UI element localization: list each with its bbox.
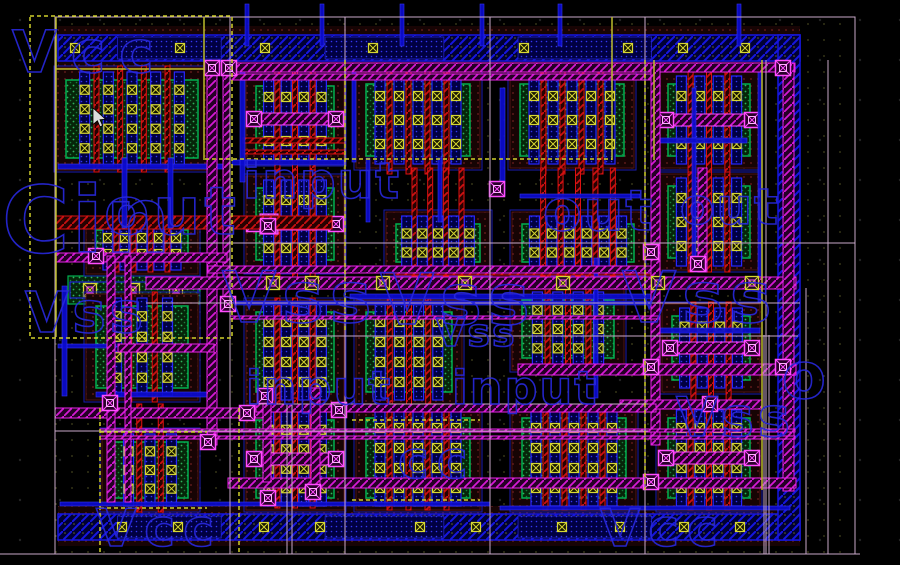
contact: [606, 116, 615, 125]
via[interactable]: [222, 61, 237, 76]
contact: [395, 140, 404, 149]
contact: [264, 244, 273, 253]
ic-layout-canvas[interactable]: VccCinoutinputoutoutVssVssVssVssVssinput…: [0, 0, 900, 565]
contact: [299, 93, 308, 102]
contact: [369, 44, 378, 53]
contact: [317, 244, 326, 253]
metal1-route[interactable]: [245, 4, 249, 46]
contact: [176, 44, 185, 53]
contact: [452, 116, 461, 125]
metal1-route[interactable]: [320, 4, 324, 46]
net-label: input: [243, 152, 401, 210]
contact: [146, 466, 155, 475]
contact: [434, 229, 443, 238]
contact: [533, 344, 542, 353]
metal2-strap[interactable]: [660, 452, 758, 464]
contact: [553, 305, 562, 314]
net-label: Vss: [25, 281, 147, 346]
contact: [167, 466, 176, 475]
net-label: input: [452, 361, 598, 415]
contact: [568, 116, 577, 125]
contact: [163, 353, 172, 362]
net-label: Vss: [436, 311, 517, 355]
via[interactable]: [745, 341, 760, 356]
contact: [414, 140, 423, 149]
contact: [472, 523, 481, 532]
contact: [695, 92, 704, 101]
contact: [449, 229, 458, 238]
contact: [624, 44, 633, 53]
contact: [695, 464, 704, 473]
contact: [299, 464, 308, 473]
metal1-route[interactable]: [737, 4, 741, 46]
contact: [151, 144, 160, 153]
contact: [128, 124, 137, 133]
contact: [547, 248, 556, 257]
poly-gate[interactable]: [562, 404, 567, 510]
via[interactable]: [329, 112, 344, 127]
contact: [608, 444, 617, 453]
contact: [175, 85, 184, 94]
contact: [532, 464, 541, 473]
contact: [589, 444, 598, 453]
via[interactable]: [306, 485, 321, 500]
poly-gate[interactable]: [581, 404, 586, 510]
contact: [261, 44, 270, 53]
contact: [452, 92, 461, 101]
contact: [151, 105, 160, 114]
metal1-route[interactable]: [655, 138, 747, 143]
contact: [163, 373, 172, 382]
via[interactable]: [201, 435, 216, 450]
contact: [608, 464, 617, 473]
contact: [376, 116, 385, 125]
contact: [175, 144, 184, 153]
contact: [416, 523, 425, 532]
net-label: Vss: [222, 257, 378, 339]
power-rail-top[interactable]: [58, 35, 800, 61]
contact: [128, 144, 137, 153]
contact: [376, 140, 385, 149]
via[interactable]: [103, 396, 118, 411]
via[interactable]: [659, 451, 674, 466]
via[interactable]: [490, 182, 505, 197]
net-label: o: [782, 340, 826, 414]
contact: [617, 248, 626, 257]
contact: [434, 248, 443, 257]
contact: [465, 229, 474, 238]
via[interactable]: [261, 491, 276, 506]
contact: [128, 105, 137, 114]
via[interactable]: [659, 113, 674, 128]
net-label: cc: [398, 431, 476, 491]
contact: [549, 116, 558, 125]
metal1-route[interactable]: [438, 158, 442, 222]
contact: [532, 444, 541, 453]
contact: [104, 85, 113, 94]
net-label: out: [104, 173, 240, 250]
contact: [677, 464, 686, 473]
metal1-route[interactable]: [400, 4, 404, 46]
contact: [282, 464, 291, 473]
contact: [376, 92, 385, 101]
contact: [736, 523, 745, 532]
metal1-route[interactable]: [480, 4, 484, 46]
contact: [138, 353, 147, 362]
poly-gate[interactable]: [543, 404, 548, 510]
contact: [565, 248, 574, 257]
net-label: Vss: [676, 386, 794, 449]
contact: [582, 248, 591, 257]
contact: [553, 325, 562, 334]
cell-block[interactable]: [656, 70, 762, 174]
contact: [80, 85, 89, 94]
contact: [418, 229, 427, 238]
contact: [449, 248, 458, 257]
contact: [558, 523, 567, 532]
contact: [146, 484, 155, 493]
metal2-strap[interactable]: [660, 114, 758, 126]
contact: [80, 124, 89, 133]
contact: [316, 523, 325, 532]
contact: [606, 92, 615, 101]
contact: [465, 248, 474, 257]
metal2-route[interactable]: [228, 63, 795, 72]
layout-editor-viewport[interactable]: VccCinoutinputoutoutVssVssVssVssVssinput…: [0, 0, 900, 565]
contact: [402, 248, 411, 257]
contact: [677, 92, 686, 101]
contact: [741, 44, 750, 53]
net-label: out: [543, 179, 654, 244]
contact: [574, 305, 583, 314]
contact: [433, 358, 442, 367]
contact: [520, 44, 529, 53]
contact: [732, 92, 741, 101]
contact: [299, 244, 308, 253]
contact: [530, 140, 539, 149]
contact: [395, 378, 404, 387]
poly-gate[interactable]: [600, 404, 605, 510]
contact: [714, 92, 723, 101]
via[interactable]: [329, 452, 344, 467]
contact: [104, 144, 113, 153]
net-label: Vcc: [12, 18, 168, 86]
contact: [587, 140, 596, 149]
via[interactable]: [247, 452, 262, 467]
via[interactable]: [205, 61, 220, 76]
contact: [574, 344, 583, 353]
contact: [395, 116, 404, 125]
contact: [167, 447, 176, 456]
contact: [589, 464, 598, 473]
cell-block[interactable]: [510, 404, 638, 512]
contact: [570, 464, 579, 473]
contact: [151, 85, 160, 94]
contact: [317, 93, 326, 102]
poly-gate[interactable]: [158, 404, 163, 512]
metal1-route[interactable]: [500, 88, 505, 196]
contact: [433, 140, 442, 149]
contact: [570, 444, 579, 453]
contact: [414, 116, 423, 125]
contact: [282, 244, 291, 253]
contact: [104, 124, 113, 133]
via[interactable]: [247, 112, 262, 127]
contact: [282, 445, 291, 454]
contact: [80, 105, 89, 114]
via[interactable]: [776, 61, 791, 76]
contact: [551, 464, 560, 473]
contact: [395, 92, 404, 101]
net-label: input: [246, 361, 392, 415]
contact: [714, 464, 723, 473]
contact: [128, 85, 137, 94]
contact: [530, 116, 539, 125]
via[interactable]: [745, 451, 760, 466]
net-label: Vss: [622, 257, 778, 339]
contact: [260, 523, 269, 532]
contact: [587, 116, 596, 125]
contact: [175, 105, 184, 114]
contact: [163, 312, 172, 321]
contact: [414, 92, 423, 101]
metal2-route[interactable]: [55, 408, 267, 418]
contact: [551, 444, 560, 453]
contact: [414, 358, 423, 367]
contact: [167, 484, 176, 493]
contact: [568, 140, 577, 149]
contact: [376, 444, 385, 453]
contact: [175, 124, 184, 133]
contact: [146, 447, 155, 456]
contact: [553, 344, 562, 353]
contact: [568, 92, 577, 101]
contact: [104, 105, 113, 114]
via[interactable]: [261, 219, 276, 234]
contact: [679, 44, 688, 53]
contact: [574, 325, 583, 334]
contact: [299, 445, 308, 454]
contact: [600, 248, 609, 257]
contact: [433, 378, 442, 387]
contact: [530, 248, 539, 257]
contact: [264, 93, 273, 102]
contact: [433, 92, 442, 101]
poly-gate[interactable]: [137, 404, 142, 512]
metal1-route[interactable]: [558, 4, 562, 46]
contact: [414, 378, 423, 387]
contact: [138, 373, 147, 382]
contact: [530, 92, 539, 101]
contact: [151, 124, 160, 133]
contact: [395, 358, 404, 367]
net-label: Vcc: [96, 499, 222, 559]
contact: [587, 92, 596, 101]
poly-route[interactable]: [243, 138, 345, 143]
via[interactable]: [745, 113, 760, 128]
contact: [418, 248, 427, 257]
contact: [549, 140, 558, 149]
contact: [452, 140, 461, 149]
via[interactable]: [557, 277, 570, 290]
contact: [163, 332, 172, 341]
net-label: Vcc: [600, 499, 726, 559]
contact: [530, 229, 539, 238]
contact: [376, 464, 385, 473]
contact: [433, 116, 442, 125]
contact: [402, 229, 411, 238]
contact: [549, 92, 558, 101]
metal2-route[interactable]: [228, 74, 660, 80]
contact: [606, 140, 615, 149]
contact: [732, 464, 741, 473]
net-label: out: [680, 178, 780, 236]
contact: [282, 93, 291, 102]
contact: [80, 144, 89, 153]
via[interactable]: [663, 341, 678, 356]
